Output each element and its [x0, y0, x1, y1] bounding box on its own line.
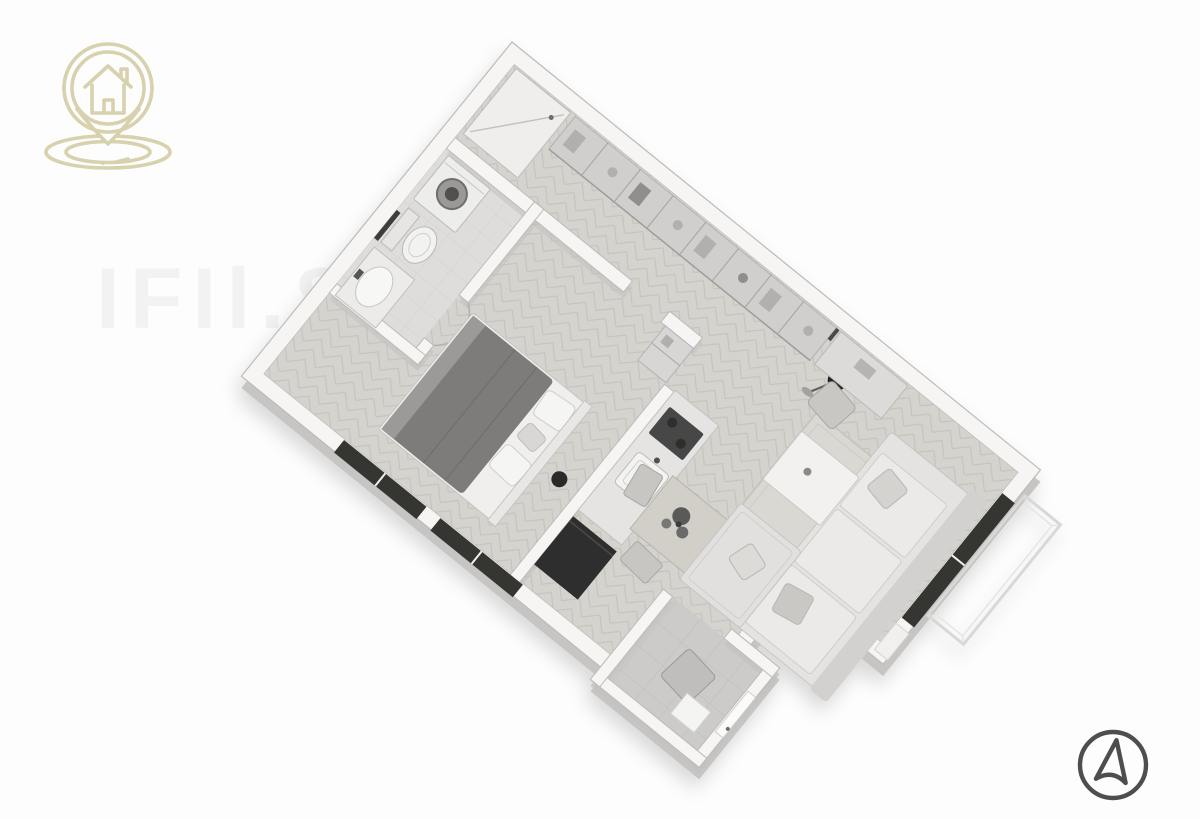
- screenshot-canvas: IFIl.S: [0, 0, 1200, 819]
- apartment: [225, 42, 1079, 819]
- floor-plan-render: IFIl.S: [0, 0, 1200, 819]
- brand-logo: [46, 44, 170, 168]
- north-arrow-icon: [1080, 732, 1146, 798]
- house-pin-icon: [64, 44, 152, 144]
- house-icon: [85, 66, 131, 113]
